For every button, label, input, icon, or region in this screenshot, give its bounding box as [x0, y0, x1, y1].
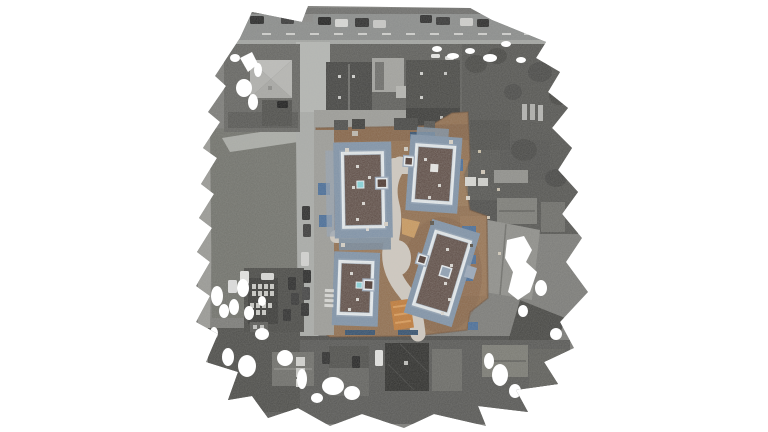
mosaic-hole: [222, 348, 234, 366]
mosaic-hole: [297, 369, 307, 389]
mosaic-hole: [255, 328, 269, 340]
mosaic-hole: [483, 54, 497, 62]
orthophoto-canvas: [0, 0, 768, 432]
mosaic-hole: [509, 384, 521, 398]
mosaic-hole: [219, 304, 229, 318]
mosaic-hole: [230, 54, 240, 62]
mosaic-hole: [229, 299, 239, 315]
mosaic-hole: [447, 53, 459, 59]
mosaic-hole: [535, 280, 547, 296]
mosaic-hole: [254, 63, 262, 77]
mosaic-hole: [465, 48, 475, 54]
mosaic-hole: [210, 327, 218, 339]
mosaic-hole: [258, 296, 266, 306]
mosaic-hole: [237, 279, 249, 297]
mosaic-hole: [244, 306, 254, 320]
mosaic-hole: [518, 305, 528, 317]
mosaic-hole: [248, 94, 258, 110]
mosaic-hole: [484, 353, 494, 369]
mosaic-hole: [236, 79, 252, 97]
mosaic-hole: [516, 57, 526, 63]
mosaic-hole: [311, 393, 323, 403]
mosaic-hole: [322, 377, 344, 395]
mosaic-hole: [501, 41, 511, 47]
orthophoto-svg: [0, 0, 768, 432]
mosaic-hole: [432, 46, 442, 52]
mosaic-hole: [344, 386, 360, 400]
mosaic-hole: [238, 355, 256, 377]
mosaic-hole: [550, 328, 562, 340]
mosaic-hole: [492, 364, 508, 386]
mosaic-hole: [211, 286, 223, 306]
orthomosaic: [194, 4, 592, 432]
mosaic-hole: [277, 350, 293, 366]
